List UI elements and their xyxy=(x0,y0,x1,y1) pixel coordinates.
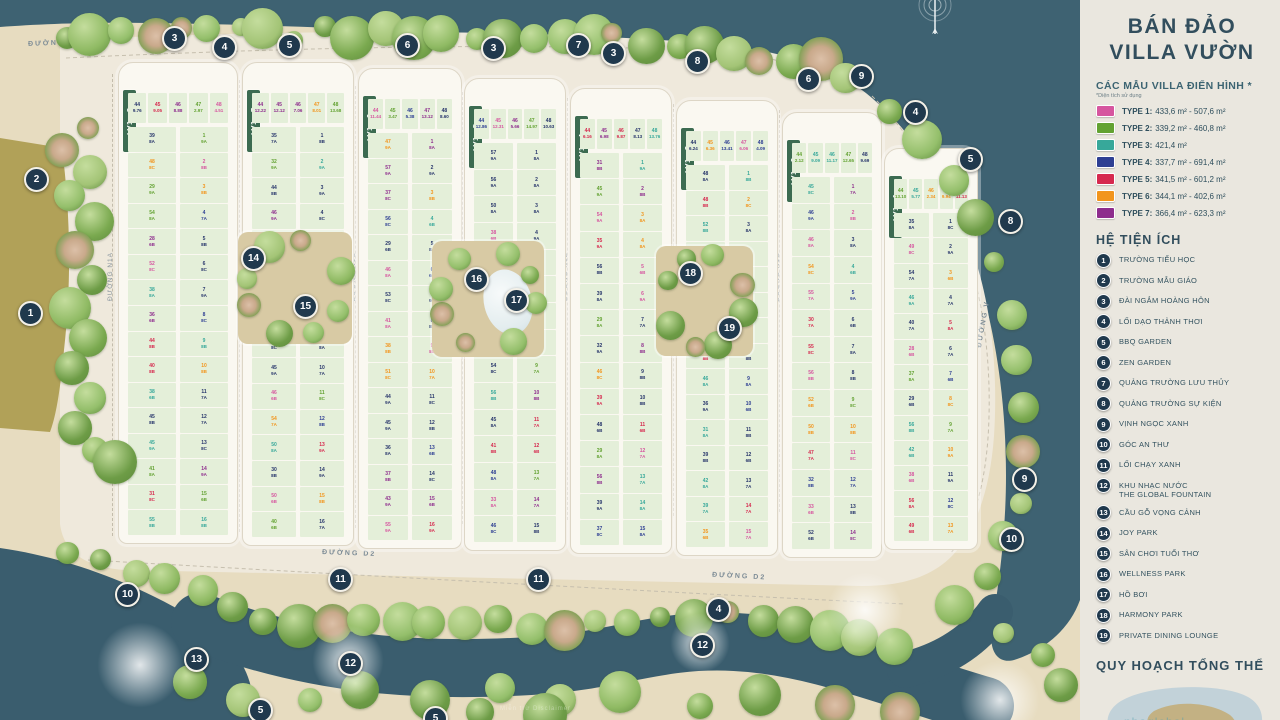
lot-cell: 38A xyxy=(623,205,662,230)
tree xyxy=(217,592,247,622)
lot-area: 8A xyxy=(703,382,709,387)
lot-cell: 472.97 xyxy=(189,93,207,123)
lot-area: 8A xyxy=(149,216,155,221)
type-area-range: 339,2 m² - 460,8 m² xyxy=(1155,124,1225,133)
lot-cell: 568B xyxy=(894,416,929,440)
lot-cell: 38B xyxy=(180,178,228,203)
lot-area: 8B xyxy=(640,349,646,354)
lot-header-row: 442.12459.094611.174712.65489.69 xyxy=(792,143,872,173)
lot-area: 13.68 xyxy=(330,108,341,113)
lot-area: 9A xyxy=(271,216,277,221)
amenity-label: BBQ GARDEN xyxy=(1119,335,1172,347)
lot-cell: 98C xyxy=(834,390,872,416)
lot-area: 6B xyxy=(429,222,435,227)
lot-area: 8A xyxy=(534,209,540,214)
amenity-marker: 16 xyxy=(464,267,489,292)
amenity-label: HỒ BƠI xyxy=(1119,587,1148,599)
lot-area: 6B xyxy=(385,247,391,252)
lot-cell: 38B xyxy=(412,184,452,209)
lot-cell: 378C xyxy=(368,184,408,209)
lot-cell: 318C xyxy=(128,485,176,510)
lot-cell: 508B xyxy=(792,417,830,443)
lot-area: 8B xyxy=(850,430,856,435)
lot-cell: 17A xyxy=(834,177,872,203)
villa-type-legend: TYPE 1:433,6 m² - 507,6 m²TYPE 2:339,2 m… xyxy=(1096,105,1268,219)
amenity-marker: 1 xyxy=(18,301,43,326)
lot-cell: 568B xyxy=(474,383,513,409)
lot-cell: 418B xyxy=(474,436,513,462)
lot-header-row: 446.16456.98469.87478.134813.76 xyxy=(580,119,662,149)
lot-cell: 357A xyxy=(252,127,296,152)
lot-area: 8C xyxy=(850,536,856,541)
lot-area: 11.44 xyxy=(370,114,381,119)
lot-area: 13.41 xyxy=(721,146,732,151)
lot-cell: 398A xyxy=(580,284,619,309)
lot-area: 8B xyxy=(703,228,709,233)
amenity-number-badge: 15 xyxy=(1096,546,1111,561)
lot-cell: 169A xyxy=(412,516,452,541)
lot-area: 8B xyxy=(909,428,915,433)
amenity-marker: 9 xyxy=(849,64,874,89)
amenity-marker: 7 xyxy=(566,33,591,58)
flowering-tree xyxy=(45,133,79,167)
lot-area: 8.88 xyxy=(174,108,183,113)
lot-area: 6B xyxy=(808,510,814,515)
flowering-tree xyxy=(730,273,754,297)
lot-cell: 478.01 xyxy=(308,93,325,123)
lot-cell: 479A xyxy=(368,133,408,158)
tree xyxy=(1001,345,1031,375)
type-area-range: 366,4 m² - 623,3 m² xyxy=(1155,209,1225,218)
lot-area: 6B xyxy=(746,458,752,463)
lot-cell: 498C xyxy=(894,238,929,262)
lot-area: 7.06 xyxy=(294,108,303,113)
lot-area: 8B xyxy=(149,523,155,528)
lot-area: 8B xyxy=(149,369,155,374)
lot-area: 6B xyxy=(271,396,277,401)
tree xyxy=(188,575,218,605)
type-label: TYPE 5: xyxy=(1122,175,1152,184)
lot-area: 8C xyxy=(948,225,954,230)
tree xyxy=(327,257,355,285)
lot-cell: 286B xyxy=(894,340,929,364)
lot-area: 14.97 xyxy=(526,124,537,129)
lot-cell: 558B xyxy=(128,510,176,535)
lot-area: 8B xyxy=(808,483,814,488)
lot-cell: 386B xyxy=(894,466,929,490)
amenity-label: HARMONY PARK xyxy=(1119,608,1183,620)
lot-cell: 468A xyxy=(368,261,408,286)
lot-area: 7A xyxy=(909,326,915,331)
lot-cell: 399A xyxy=(580,389,619,414)
lot-cell: 29A xyxy=(300,153,344,178)
lot-cell: 98B xyxy=(623,363,662,388)
lot-area: 8A xyxy=(948,326,954,331)
lot-column: 18B28C38A48A57A66B77A88B98A106B118B126B1… xyxy=(729,165,768,547)
lot-cell: 489.69 xyxy=(858,143,872,173)
lot-cell: 148C xyxy=(834,523,872,549)
lot-cell: 167A xyxy=(300,512,344,537)
lot-area: 8B xyxy=(703,356,709,361)
lot-cell: 446.16 xyxy=(580,119,595,149)
lot-cell: 358A xyxy=(894,213,929,237)
lot-cell: 137A xyxy=(729,471,768,496)
villa-types-note: *Diện tích sử dụng xyxy=(1096,93,1268,99)
amenity-item: 17HỒ BƠI xyxy=(1096,587,1268,602)
street-name: ĐƯỜNG N1A xyxy=(107,252,114,301)
lot-area: 8C xyxy=(149,497,155,502)
lot-area: 8A xyxy=(491,423,497,428)
amenity-marker: 12 xyxy=(690,633,715,658)
tree xyxy=(984,252,1004,272)
lot-area: 8A xyxy=(746,228,752,233)
amenity-label: ĐÀI NGẮM HOÀNG HÔN xyxy=(1119,294,1210,306)
amenity-item: 5BBQ GARDEN xyxy=(1096,335,1268,350)
lot-cell: 398B xyxy=(686,446,725,471)
amenity-number-badge: 11 xyxy=(1096,458,1111,473)
lot-area: 8B xyxy=(429,196,435,201)
lot-area: 13.76 xyxy=(649,134,660,139)
lot-cell: 386B xyxy=(128,383,176,408)
lot-area: 8B xyxy=(746,433,752,438)
lot-area: 8B xyxy=(808,376,814,381)
lot-cell: 296B xyxy=(368,235,408,260)
lot-area: 7A xyxy=(201,216,207,221)
type-area-range: 337,7 m² - 691,4 m² xyxy=(1155,158,1225,167)
lot-cell: 449.76 xyxy=(128,93,146,123)
tree xyxy=(974,563,1001,590)
lot-cell: 28A xyxy=(517,170,556,196)
lot-cell: 46B xyxy=(412,210,452,235)
lot-cell: 18A xyxy=(517,143,556,169)
amenity-item: 2TRƯỜNG MẪU GIÁO xyxy=(1096,273,1268,288)
lot-area: 8A xyxy=(640,218,646,223)
lot-cell: 465.66 xyxy=(508,109,523,139)
lot-area: 8C xyxy=(201,318,207,323)
lot-cell: 448B xyxy=(252,178,296,203)
tree xyxy=(748,605,780,637)
lot-area: 5.38 xyxy=(406,114,415,119)
lot-area: 8.13 xyxy=(633,134,642,139)
amenity-label: TRƯỜNG MẪU GIÁO xyxy=(1119,273,1197,285)
lot-cell: 469A xyxy=(894,289,929,313)
amenities-heading: HỆ TIỆN ÍCH xyxy=(1096,233,1268,247)
lot-cell: 138B xyxy=(834,497,872,523)
lot-cell: 488.60 xyxy=(437,99,452,129)
amenity-number-badge: 9 xyxy=(1096,417,1111,432)
lot-cell: 118C xyxy=(412,388,452,413)
lot-area: 7A xyxy=(319,525,325,530)
amenity-marker: 15 xyxy=(293,294,318,319)
lot-area: 8A xyxy=(909,377,915,382)
lot-cell: 569A xyxy=(474,170,513,196)
lot-cell: 478.13 xyxy=(630,119,645,149)
type-color-swatch xyxy=(1096,139,1115,151)
lot-cell: 329A xyxy=(252,153,296,178)
villa-type-row: TYPE 1:433,6 m² - 507,6 m² xyxy=(1096,105,1268,117)
amenity-marker: 5 xyxy=(248,698,273,720)
amenity-number-badge: 5 xyxy=(1096,335,1111,350)
lot-area: 9A xyxy=(319,448,325,453)
lot-area: 7A xyxy=(948,352,954,357)
lot-cell: 458A xyxy=(474,410,513,436)
lot-cell: 88B xyxy=(834,363,872,389)
lot-area: 8C xyxy=(385,222,391,227)
lot-area: 8B xyxy=(201,242,207,247)
lot-header-row: 4411.44453.47465.384713.12488.60 xyxy=(368,99,452,129)
lot-cell: 58A xyxy=(933,314,968,338)
lot-area: 8C xyxy=(948,402,954,407)
lot-area: 6B xyxy=(703,535,709,540)
lot-cell: 149A xyxy=(180,459,228,484)
flowering-tree xyxy=(686,337,706,357)
amenity-item: 1TRƯỜNG TIỂU HỌC xyxy=(1096,253,1268,268)
lot-area: 9A xyxy=(385,528,391,533)
lot-cell: 4813.76 xyxy=(647,119,662,149)
lot-area: 7A xyxy=(201,420,207,425)
lot-area: 8B xyxy=(808,430,814,435)
lot-area: 9A xyxy=(808,216,814,221)
lot-area: 9A xyxy=(948,250,954,255)
lot-column: 318B459A549A359A568B398A298A329A468C399A… xyxy=(580,153,619,545)
lot-area: 2.97 xyxy=(194,108,203,113)
tree xyxy=(1031,643,1055,667)
amenity-marker: 10 xyxy=(999,527,1024,552)
lot-area: 9A xyxy=(201,139,207,144)
tree xyxy=(628,28,664,64)
lot-cell: 557A xyxy=(792,284,830,310)
tree xyxy=(330,16,374,60)
lot-cell: 378B xyxy=(368,465,408,490)
lot-cell: 4713.12 xyxy=(420,99,435,129)
lot-area: 8B xyxy=(201,344,207,349)
lot-area: 6.36 xyxy=(706,146,715,151)
lot-area: 7A xyxy=(703,509,709,514)
lot-area: 8B xyxy=(746,356,752,361)
lot-cell: 484.09 xyxy=(753,131,768,161)
lot-area: 7A xyxy=(319,371,325,376)
lot-header-row: 4412.864512.31465.664714.974810.63 xyxy=(474,109,556,139)
page-title: BÁN ĐẢO VILLA VƯỜN xyxy=(1096,14,1268,66)
lot-area: 7A xyxy=(948,428,954,433)
amenity-marker: 3 xyxy=(481,36,506,61)
type-color-swatch xyxy=(1096,122,1115,134)
lot-cell: 506B xyxy=(252,487,296,512)
tree xyxy=(149,563,180,594)
lot-area: 6B xyxy=(271,525,277,530)
amenity-number-badge: 19 xyxy=(1096,628,1111,643)
amenity-marker: 4 xyxy=(212,35,237,60)
lot-area: 8B xyxy=(385,477,391,482)
tree xyxy=(466,698,494,720)
villa-type-row: TYPE 6:344,1 m² - 402,6 m² xyxy=(1096,190,1268,202)
lot-cell: 88C xyxy=(933,390,968,414)
lot-area: 8A xyxy=(640,532,646,537)
lot-cell: 469.87 xyxy=(614,119,629,149)
lot-cell: 128B xyxy=(412,414,452,439)
lot-cell: 116B xyxy=(623,415,662,440)
tree xyxy=(448,606,482,640)
lot-cell: 488B xyxy=(686,191,725,216)
lot-area: 8B xyxy=(534,396,540,401)
lot-cell: 168B xyxy=(180,510,228,535)
lot-cell: 298A xyxy=(580,441,619,466)
lot-cell: 127A xyxy=(180,408,228,433)
lot-cell: 465.38 xyxy=(402,99,417,129)
lot-area: 9A xyxy=(491,156,497,161)
lot-area: 9.76 xyxy=(133,108,142,113)
lot-cell: 38A xyxy=(729,216,768,241)
lot-cell: 547A xyxy=(894,264,929,288)
lot-area: 6B xyxy=(746,407,752,412)
lot-area: 8B xyxy=(149,420,155,425)
lot-area: 8A xyxy=(491,503,497,508)
amenity-number-badge: 6 xyxy=(1096,355,1111,370)
amenity-marker: 4 xyxy=(903,100,928,125)
lot-cell: 579A xyxy=(474,143,513,169)
lot-area: 9A xyxy=(429,528,435,533)
lot-area: 6.24 xyxy=(689,146,698,151)
lot-area: 8C xyxy=(201,267,207,272)
lot-cell: 548A xyxy=(128,204,176,229)
lot-area: 7A xyxy=(948,301,954,306)
amenity-number-badge: 1 xyxy=(1096,253,1111,268)
lot-area: 8B xyxy=(491,396,497,401)
type-label: TYPE 4: xyxy=(1122,158,1152,167)
lot-cell: 137A xyxy=(623,467,662,492)
amenity-number-badge: 2 xyxy=(1096,273,1111,288)
lot-area: 8C xyxy=(909,250,915,255)
lot-cell: 4412.86 xyxy=(474,109,489,139)
compass-icon xyxy=(905,0,969,42)
lot-area: 9A xyxy=(491,183,497,188)
lot-area: 7A xyxy=(429,375,435,380)
lot-cell: 4413.10 xyxy=(894,179,907,209)
lot-area: 8C xyxy=(948,504,954,509)
amenity-number-badge: 16 xyxy=(1096,567,1111,582)
tree xyxy=(298,688,322,712)
lot-area: 7A xyxy=(808,323,814,328)
lot-cell: 449A xyxy=(368,388,408,413)
lot-area: 8A xyxy=(850,243,856,248)
lot-cell: 439A xyxy=(368,490,408,515)
lot-cell: 308B xyxy=(252,461,296,486)
lot-area: 8C xyxy=(149,267,155,272)
lot-cell: 119A xyxy=(933,466,968,490)
type-color-swatch xyxy=(1096,105,1115,117)
tree xyxy=(614,609,641,636)
lot-area: 6B xyxy=(948,276,954,281)
lot-area: 9A xyxy=(597,192,603,197)
lot-cell: 157A xyxy=(729,522,768,547)
lot-area: 12.12 xyxy=(274,108,285,113)
lot-header-row: 449.76459.05468.88472.97484.51 xyxy=(128,93,228,123)
lot-area: 8B xyxy=(746,177,752,182)
amenity-marker: 19 xyxy=(717,316,742,341)
amenity-marker: 11 xyxy=(328,567,353,592)
lot-area: 6B xyxy=(909,352,915,357)
type-color-swatch xyxy=(1096,156,1115,168)
amenity-marker: 6 xyxy=(395,33,420,58)
lot-cell: 468.88 xyxy=(169,93,187,123)
tree xyxy=(656,311,685,340)
flowering-tree xyxy=(56,231,94,269)
lot-area: 10.63 xyxy=(543,124,554,129)
lot-cell: 336B xyxy=(792,497,830,523)
lot-cell: 108B xyxy=(834,417,872,443)
lot-cell: 359A xyxy=(580,232,619,257)
lot-area: 8B xyxy=(385,349,391,354)
lot-area: 8B xyxy=(201,165,207,170)
lot-cell: 398A xyxy=(128,127,176,152)
lot-area: 7A xyxy=(746,535,752,540)
master-plan-heading: QUY HOẠCH TỔNG THỂ xyxy=(1096,658,1268,673)
tree xyxy=(93,440,137,484)
lot-area: 7A xyxy=(640,323,646,328)
amenity-marker: 17 xyxy=(504,288,529,313)
amenity-label: SÂN CHƠI TUỔI THƠ xyxy=(1119,546,1199,558)
title-line-2: VILLA VƯỜN xyxy=(1096,40,1268,66)
lot-cell: 59A xyxy=(834,284,872,310)
amenity-label: QUẢNG TRƯỜNG SỰ KIỆN xyxy=(1119,396,1222,408)
lot-cell: 36B xyxy=(933,264,968,288)
lot-area: 6B xyxy=(149,242,155,247)
lot-area: 8C xyxy=(808,350,814,355)
lot-area: 9A xyxy=(640,166,646,171)
lot-cell: 526B xyxy=(792,523,830,549)
lot-column: 18C29A36B47A58A67A76B88C97A109A119A128C1… xyxy=(933,213,968,541)
lot-area: 8A xyxy=(597,454,603,459)
lot-area: 8C xyxy=(385,196,391,201)
amenity-marker: 12 xyxy=(338,651,363,676)
lot-area: 9A xyxy=(640,297,646,302)
lot-cell: 428A xyxy=(686,471,725,496)
lot-area: 13.10 xyxy=(895,194,906,199)
lot-cell: 48C xyxy=(300,204,344,229)
lot-columns: 398A488C299A548A286B528C388A366B448B408B… xyxy=(128,127,228,535)
villa-type-row: TYPE 4:337,7 m² - 691,4 m² xyxy=(1096,156,1268,168)
lot-cell: 28B xyxy=(834,204,872,230)
lot-area: 8C xyxy=(201,446,207,451)
lot-area: 9A xyxy=(703,407,709,412)
tree xyxy=(902,120,942,160)
lot-cell: 149A xyxy=(300,461,344,486)
flowering-tree xyxy=(1006,435,1039,468)
lot-area: 4.09 xyxy=(756,146,765,151)
lot-area: 8B xyxy=(149,344,155,349)
tree xyxy=(496,242,520,266)
lot-area: 6B xyxy=(429,502,435,507)
lot-area: 8B xyxy=(319,422,325,427)
lot-area: 8A xyxy=(640,506,646,511)
flowering-tree xyxy=(290,230,312,252)
lot-cell: 456.98 xyxy=(597,119,612,149)
lot-cell: 338A xyxy=(474,490,513,516)
amenity-item: 14JOY PARK xyxy=(1096,526,1268,541)
lot-area: 9A xyxy=(597,506,603,511)
lot-cell: 488A xyxy=(686,165,725,190)
lot-area: 9A xyxy=(149,446,155,451)
lot-cell: 66B xyxy=(834,310,872,336)
lot-cell: 76B xyxy=(933,365,968,389)
lot-cell: 4512.12 xyxy=(271,93,288,123)
lot-column: 479A579A378C568C296B468A538C418A388B518C… xyxy=(368,133,408,540)
lot-cell: 128B xyxy=(300,410,344,435)
amenity-marker: 10 xyxy=(115,582,140,607)
lot-area: 7A xyxy=(534,423,540,428)
amenity-item: 19PRIVATE DINING LOUNGE xyxy=(1096,628,1268,643)
tree xyxy=(74,382,105,413)
